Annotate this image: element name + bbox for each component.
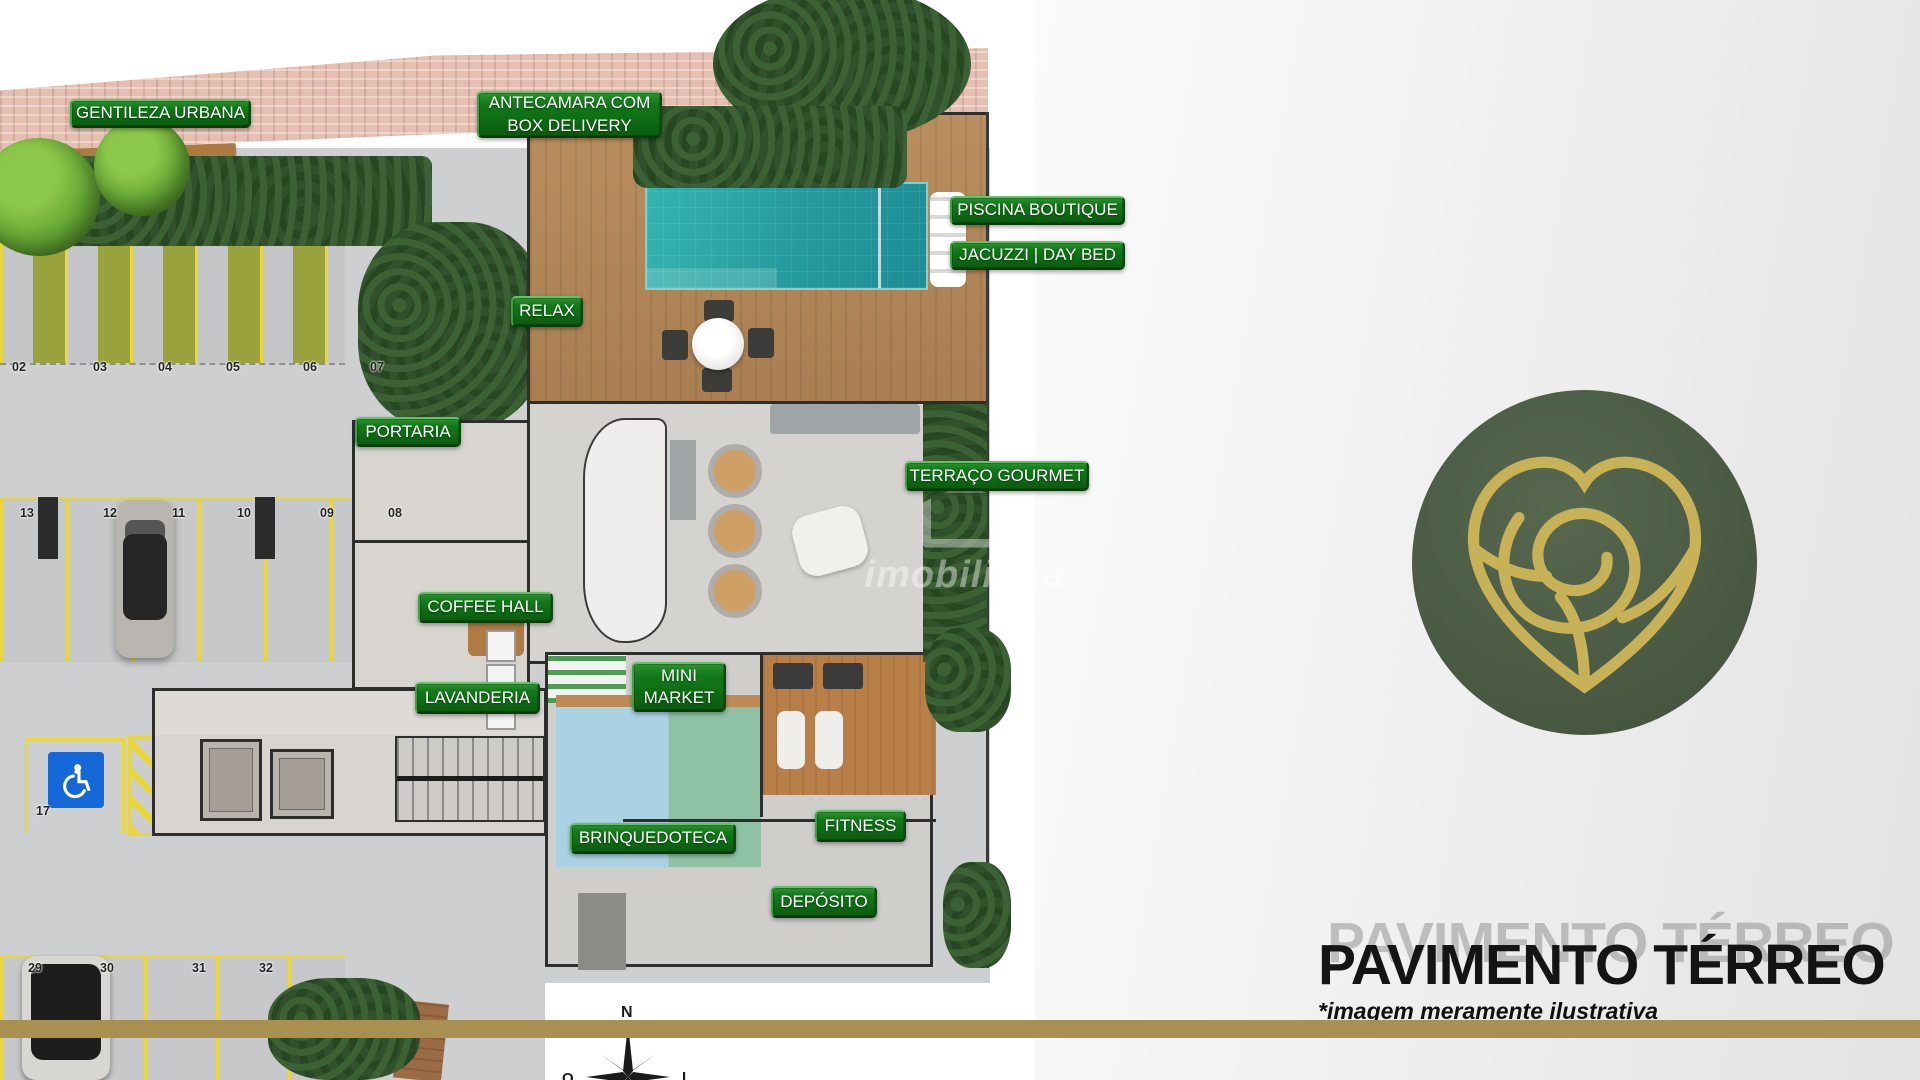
plan-label-lavanderia: LAVANDERIA <box>415 682 540 714</box>
staircase <box>395 736 545 822</box>
deck-chair <box>748 328 774 358</box>
parking-stall-number-32: 32 <box>259 961 273 975</box>
patio-umbrella <box>692 318 744 370</box>
parking-stall-number-29: 29 <box>28 961 42 975</box>
deck-chair <box>662 330 688 360</box>
parking-row-top <box>0 243 345 363</box>
compass-west-label: O <box>562 1070 574 1080</box>
fitness-lounger <box>815 711 843 769</box>
plan-label-relax: RELAX <box>511 296 583 327</box>
plan-label-fitness: FITNESS <box>815 810 906 842</box>
parking-stall-number-30: 30 <box>100 961 114 975</box>
storage-gate <box>578 893 626 970</box>
watermark-text: imobiliária <box>864 554 1065 597</box>
plan-label-coffee-hall: COFFEE HALL <box>418 592 553 623</box>
parking-stall-number-02: 02 <box>12 360 26 374</box>
elevator-shaft <box>270 749 334 819</box>
fitness-lounger <box>777 711 805 769</box>
parking-stall-number-12: 12 <box>103 506 117 520</box>
parking-stall-number-11: 11 <box>172 506 185 520</box>
tree <box>94 118 190 216</box>
plan-label-terraco-gourmet: TERRAÇO GOURMET <box>905 461 1089 491</box>
pillar <box>38 497 58 559</box>
swimming-pool <box>645 182 928 290</box>
pillar <box>255 497 275 559</box>
branding-panel: PAVIMENTO TÉRREO *imagem meramente ilust… <box>1035 0 1920 1080</box>
rose-heart-logo-icon <box>1412 390 1757 735</box>
plan-label-mini-market: MINI MARKET <box>632 662 726 712</box>
wheelchair-accessible-icon <box>48 752 104 808</box>
plan-label-brinquedoteca: BRINQUEDOTECA <box>570 823 736 854</box>
parking-stall-number-06: 06 <box>303 360 317 374</box>
floor-plan-screenshot: imobiliária GENTILEZA URBANAANTECAMARA C… <box>0 0 1920 1080</box>
treadmill <box>823 663 863 689</box>
planting-bed <box>925 628 1011 732</box>
deck-chair <box>702 368 732 392</box>
compass-east-label: L <box>682 1069 691 1080</box>
parking-stall-number-03: 03 <box>93 360 107 374</box>
plan-label-gentileza-urbana: GENTILEZA URBANA <box>70 99 251 128</box>
parking-stall-number-05: 05 <box>226 360 240 374</box>
page-title: PAVIMENTO TÉRREO <box>1318 936 1878 996</box>
parking-stall-number-17: 17 <box>36 804 50 818</box>
parking-stall-number-10: 10 <box>237 506 251 520</box>
coffee-counter <box>583 418 667 643</box>
plan-label-jacuzzi-day-bed: JACUZZI | DAY BED <box>950 241 1125 270</box>
treadmill <box>773 663 813 689</box>
parking-stall-number-31: 31 <box>192 961 206 975</box>
parking-stall-number-13: 13 <box>20 506 34 520</box>
service-counter <box>670 440 696 520</box>
compass-north-label: N <box>621 1004 633 1021</box>
dining-table <box>714 570 756 612</box>
dining-table <box>714 510 756 552</box>
plan-label-deposito: DEPÓSITO <box>771 886 877 918</box>
parking-stall-number-07: 07 <box>370 360 384 374</box>
washing-machine <box>486 630 516 662</box>
plan-label-piscina-boutique: PISCINA BOUTIQUE <box>950 196 1125 225</box>
parked-car <box>116 500 174 658</box>
plan-label-portaria: PORTARIA <box>355 417 461 447</box>
green-wall-pool <box>633 106 907 188</box>
parking-stall-number-04: 04 <box>158 360 172 374</box>
elevator-shaft <box>200 739 262 821</box>
lane-dashed-line <box>0 363 345 365</box>
gold-divider-bar <box>0 1020 1920 1038</box>
compass-rose: N O L <box>560 1002 696 1080</box>
interior-wall <box>352 540 530 543</box>
kitchen-island <box>770 404 920 434</box>
house-watermark-icon <box>922 484 1008 548</box>
fitness-room <box>763 655 936 795</box>
parking-stall-number-09: 09 <box>320 506 334 520</box>
plan-label-antecamara-box-delivery: ANTECAMARA COM BOX DELIVERY <box>477 91 662 138</box>
dining-table <box>714 450 756 492</box>
planting-bed <box>943 862 1011 968</box>
parking-stall-number-08: 08 <box>388 506 402 520</box>
